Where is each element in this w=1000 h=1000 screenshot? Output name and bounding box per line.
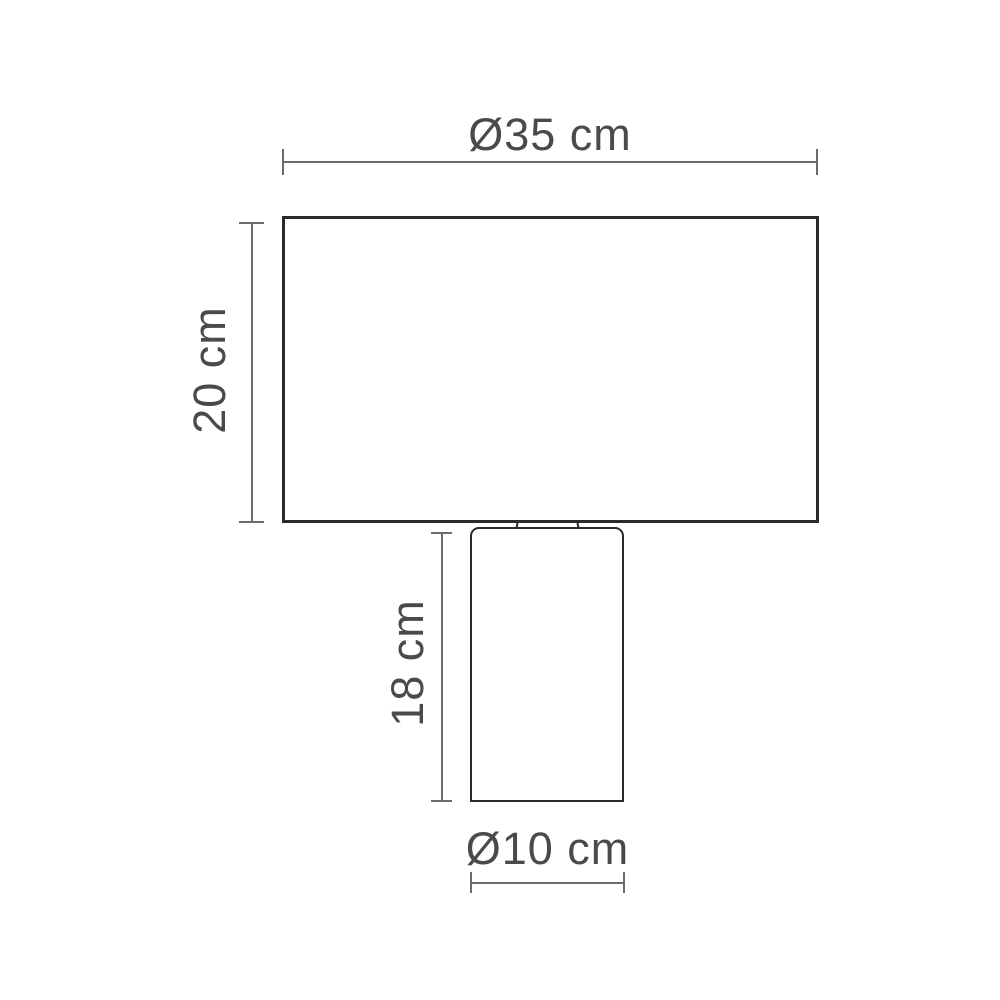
base-height-label: 18 cm [385, 553, 431, 773]
base-height-dimension-line [441, 532, 443, 802]
shade-height-dimension-line [251, 222, 253, 523]
shade-diameter-dimension-line [282, 161, 818, 163]
base-diameter-label: Ø10 cm [420, 826, 675, 872]
shade-diameter-label: Ø35 cm [282, 112, 818, 158]
lamp-shade-outline [282, 216, 819, 523]
dimension-tick [431, 800, 452, 802]
dimension-tick [623, 872, 625, 893]
dimension-tick [239, 222, 264, 224]
lamp-dimension-diagram: Ø35 cm 20 cm 18 cm Ø10 cm [0, 0, 1000, 1000]
dimension-tick [470, 872, 472, 893]
dimension-tick [431, 532, 452, 534]
dimension-tick [239, 521, 264, 523]
dimension-tick [816, 149, 818, 175]
lamp-base-outline [470, 527, 624, 802]
shade-height-label: 20 cm [187, 260, 233, 480]
dimension-tick [282, 149, 284, 175]
base-diameter-dimension-line [470, 882, 625, 884]
